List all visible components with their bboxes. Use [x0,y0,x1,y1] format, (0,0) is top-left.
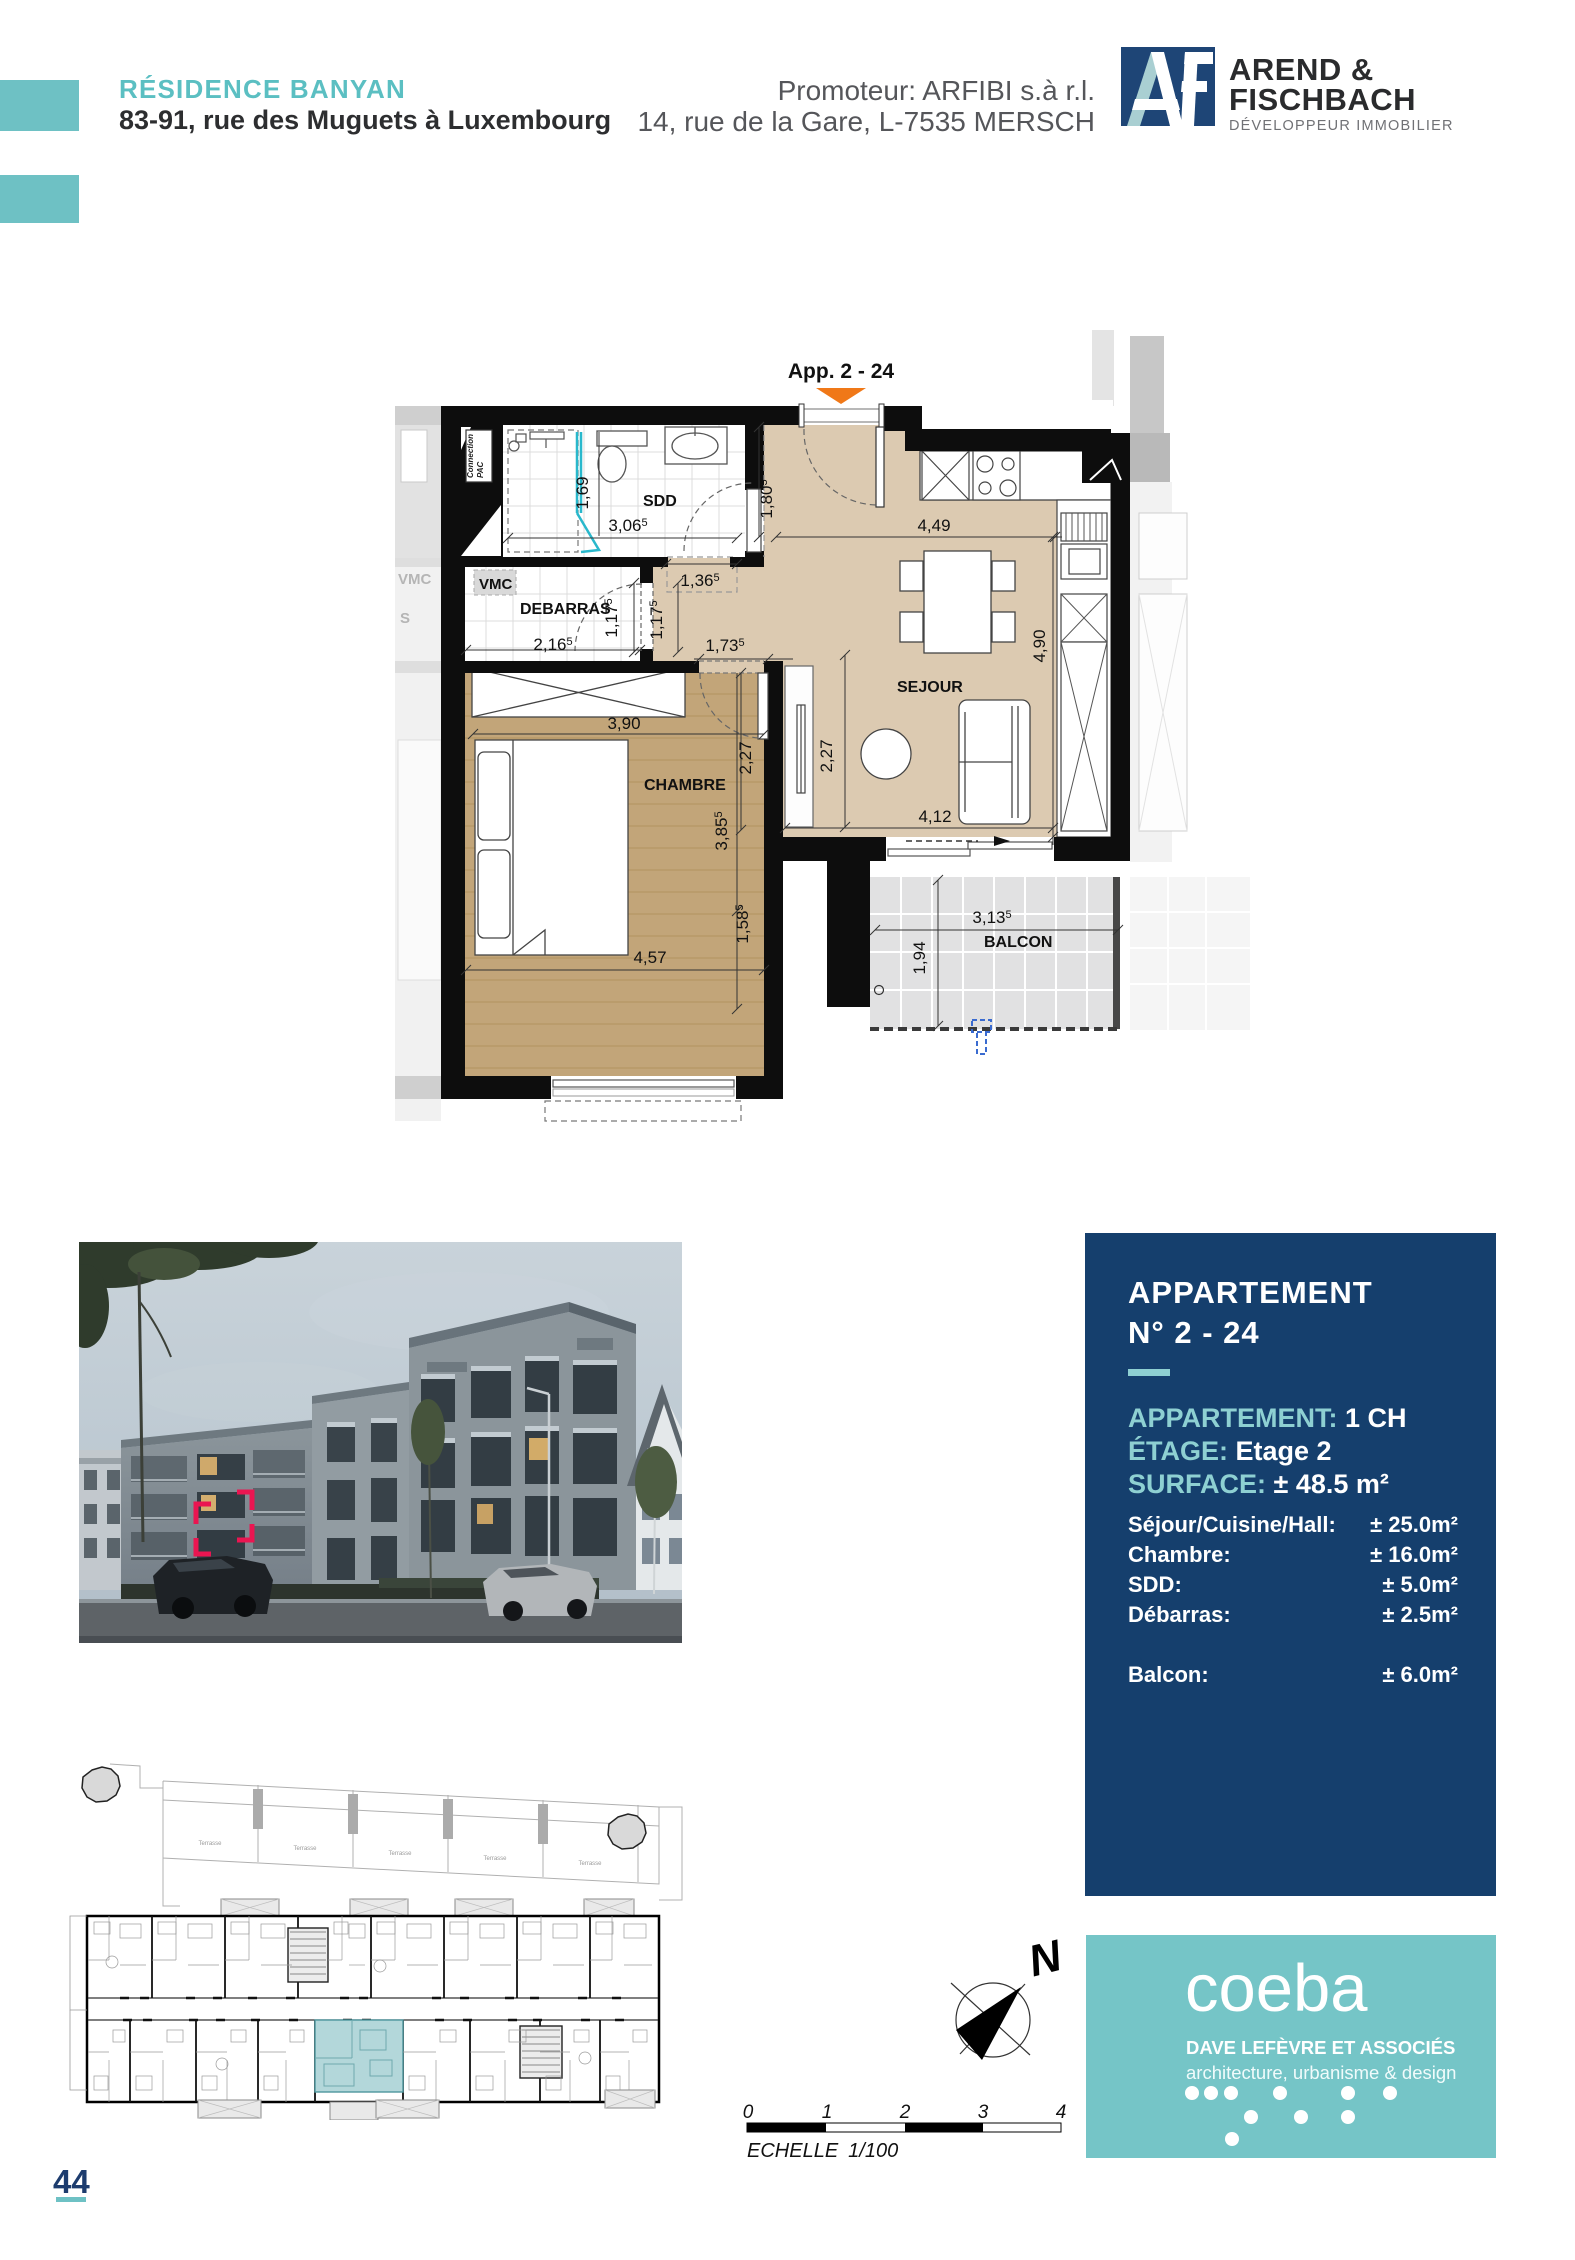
svg-text:0: 0 [743,2102,754,2123]
svg-text:ECHELLE 1/100: ECHELLE 1/100 [747,2140,898,2162]
svg-text:2: 2 [899,2102,911,2123]
svg-text:App. 2 - 24: App. 2 - 24 [788,360,895,383]
svg-text:4: 4 [1056,2102,1067,2123]
svg-text:2,27: 2,27 [736,741,755,774]
svg-text:1,69: 1,69 [573,476,592,509]
svg-text:4,12: 4,12 [918,807,951,826]
svg-text:4,57: 4,57 [633,948,666,967]
svg-text:Terrasse: Terrasse [578,1861,602,1867]
svg-text:Terrasse: Terrasse [198,1841,222,1847]
svg-text:DÉVELOPPEUR IMMOBILIER: DÉVELOPPEUR IMMOBILIER [1229,117,1454,134]
svg-text:2,27: 2,27 [817,739,836,772]
svg-text:CHAMBRE: CHAMBRE [644,777,726,794]
svg-text:Terrasse: Terrasse [483,1856,507,1862]
svg-text:DEBARRAS: DEBARRAS [520,601,611,618]
svg-text:Terrasse: Terrasse [388,1851,412,1857]
svg-text:N: N [1024,1931,1068,1987]
svg-text:1,94: 1,94 [910,941,929,974]
svg-text:SDD: SDD [643,493,677,510]
svg-text:3,90: 3,90 [607,714,640,733]
svg-text:4,90: 4,90 [1030,629,1049,662]
svg-text:FISCHBACH: FISCHBACH [1229,82,1416,117]
svg-text:PAC: PAC [476,461,485,478]
svg-text:Connection: Connection [466,434,475,478]
svg-text:BALCON: BALCON [984,934,1052,951]
svg-text:VMC: VMC [479,576,513,593]
svg-text:S: S [400,610,410,627]
svg-text:VMC: VMC [398,571,432,588]
svg-text:4,49: 4,49 [917,516,950,535]
svg-text:Terrasse: Terrasse [293,1846,317,1852]
svg-text:SEJOUR: SEJOUR [897,679,963,696]
svg-text:1: 1 [822,2102,833,2123]
svg-text:3: 3 [978,2102,989,2123]
